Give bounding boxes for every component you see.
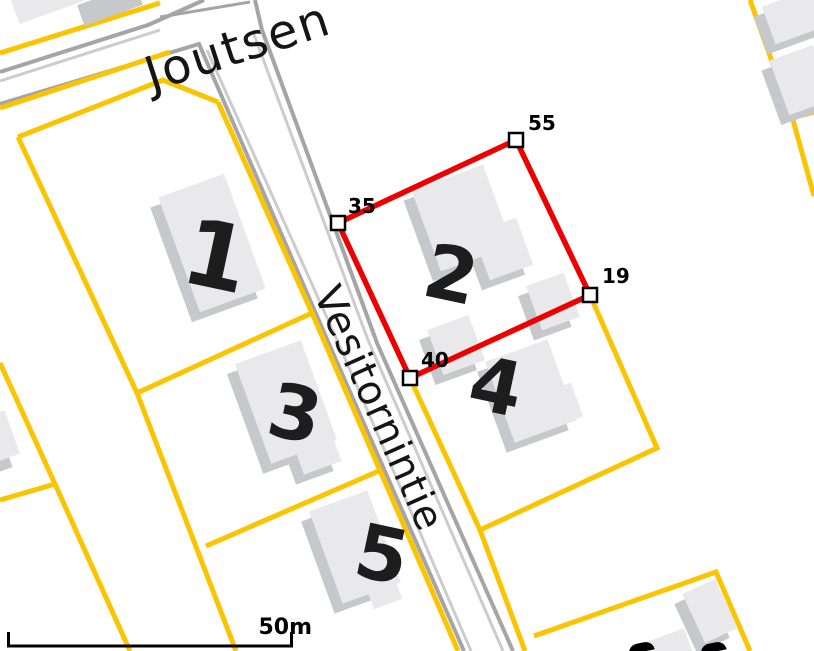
vertex-marker-40[interactable] <box>403 371 417 385</box>
parcel-west-branch <box>0 484 55 500</box>
parcel-far-west-boundary <box>0 363 130 651</box>
vertex-label-40: 40 <box>421 350 449 370</box>
map-canvas[interactable]: Joutsen Vesitornintie 1 2 3 4 5 35 55 19… <box>0 0 814 651</box>
vertex-label-55: 55 <box>528 113 556 133</box>
vertex-marker-19[interactable] <box>583 288 597 302</box>
road-junction-curb <box>160 2 250 17</box>
building-top-left <box>11 0 86 24</box>
vertex-marker-35[interactable] <box>331 216 345 230</box>
vertex-marker-55[interactable] <box>509 133 523 147</box>
scale-bar <box>7 632 293 647</box>
scale-bar-label: 50m <box>252 615 312 640</box>
vertex-label-35: 35 <box>348 196 376 216</box>
building-left-edge-partial <box>0 410 20 461</box>
vertex-label-19: 19 <box>602 266 630 286</box>
road-edges <box>0 0 513 651</box>
road-joutsen-inner-line <box>0 30 160 81</box>
